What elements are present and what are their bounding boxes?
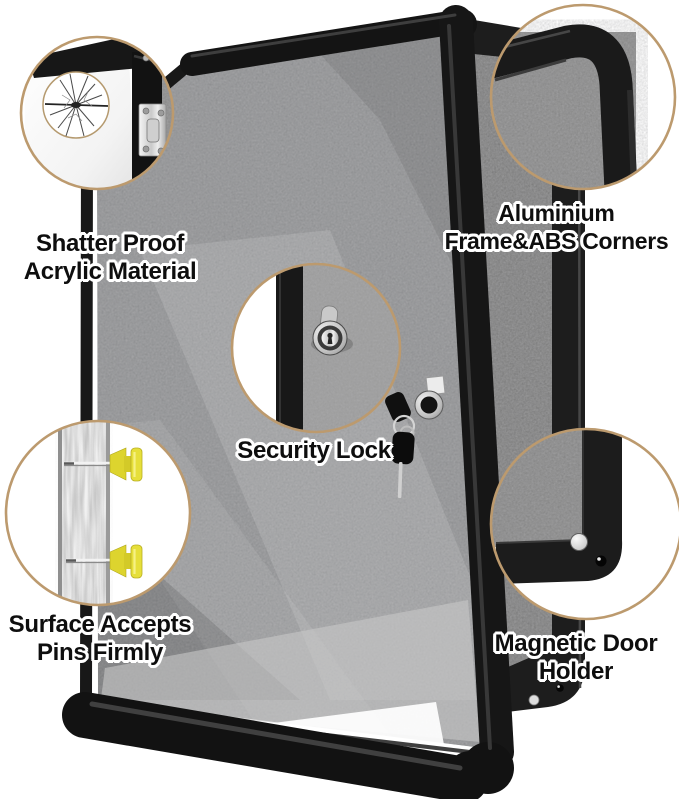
label-pins: Surface Accepts Pins Firmly [0, 611, 200, 667]
label-line: Aluminium [434, 199, 679, 227]
product-feature-image: Shatter Proof Acrylic Material Aluminium… [0, 0, 679, 799]
magnet-icon [571, 534, 588, 551]
hinge-icon [139, 104, 166, 156]
label-shatterproof: Shatter Proof Acrylic Material [2, 230, 218, 286]
label-line: Shatter Proof [2, 230, 218, 258]
label-magnet: Magnetic Door Holder [470, 630, 679, 686]
label-line: Pins Firmly [0, 639, 200, 667]
label-lock: Security Lock [224, 437, 404, 465]
label-line: Frame&ABS Corners [434, 227, 679, 255]
label-line: Acrylic Material [2, 258, 218, 286]
magnet-dot [529, 695, 539, 705]
label-line: Surface Accepts [0, 611, 200, 639]
label-frame: Aluminium Frame&ABS Corners [434, 199, 679, 255]
label-line: Security Lock [224, 437, 404, 465]
label-line: Magnetic Door [470, 630, 679, 658]
label-line: Holder [470, 658, 679, 686]
crack-burst-icon [43, 72, 109, 138]
screw-hole [596, 556, 607, 567]
